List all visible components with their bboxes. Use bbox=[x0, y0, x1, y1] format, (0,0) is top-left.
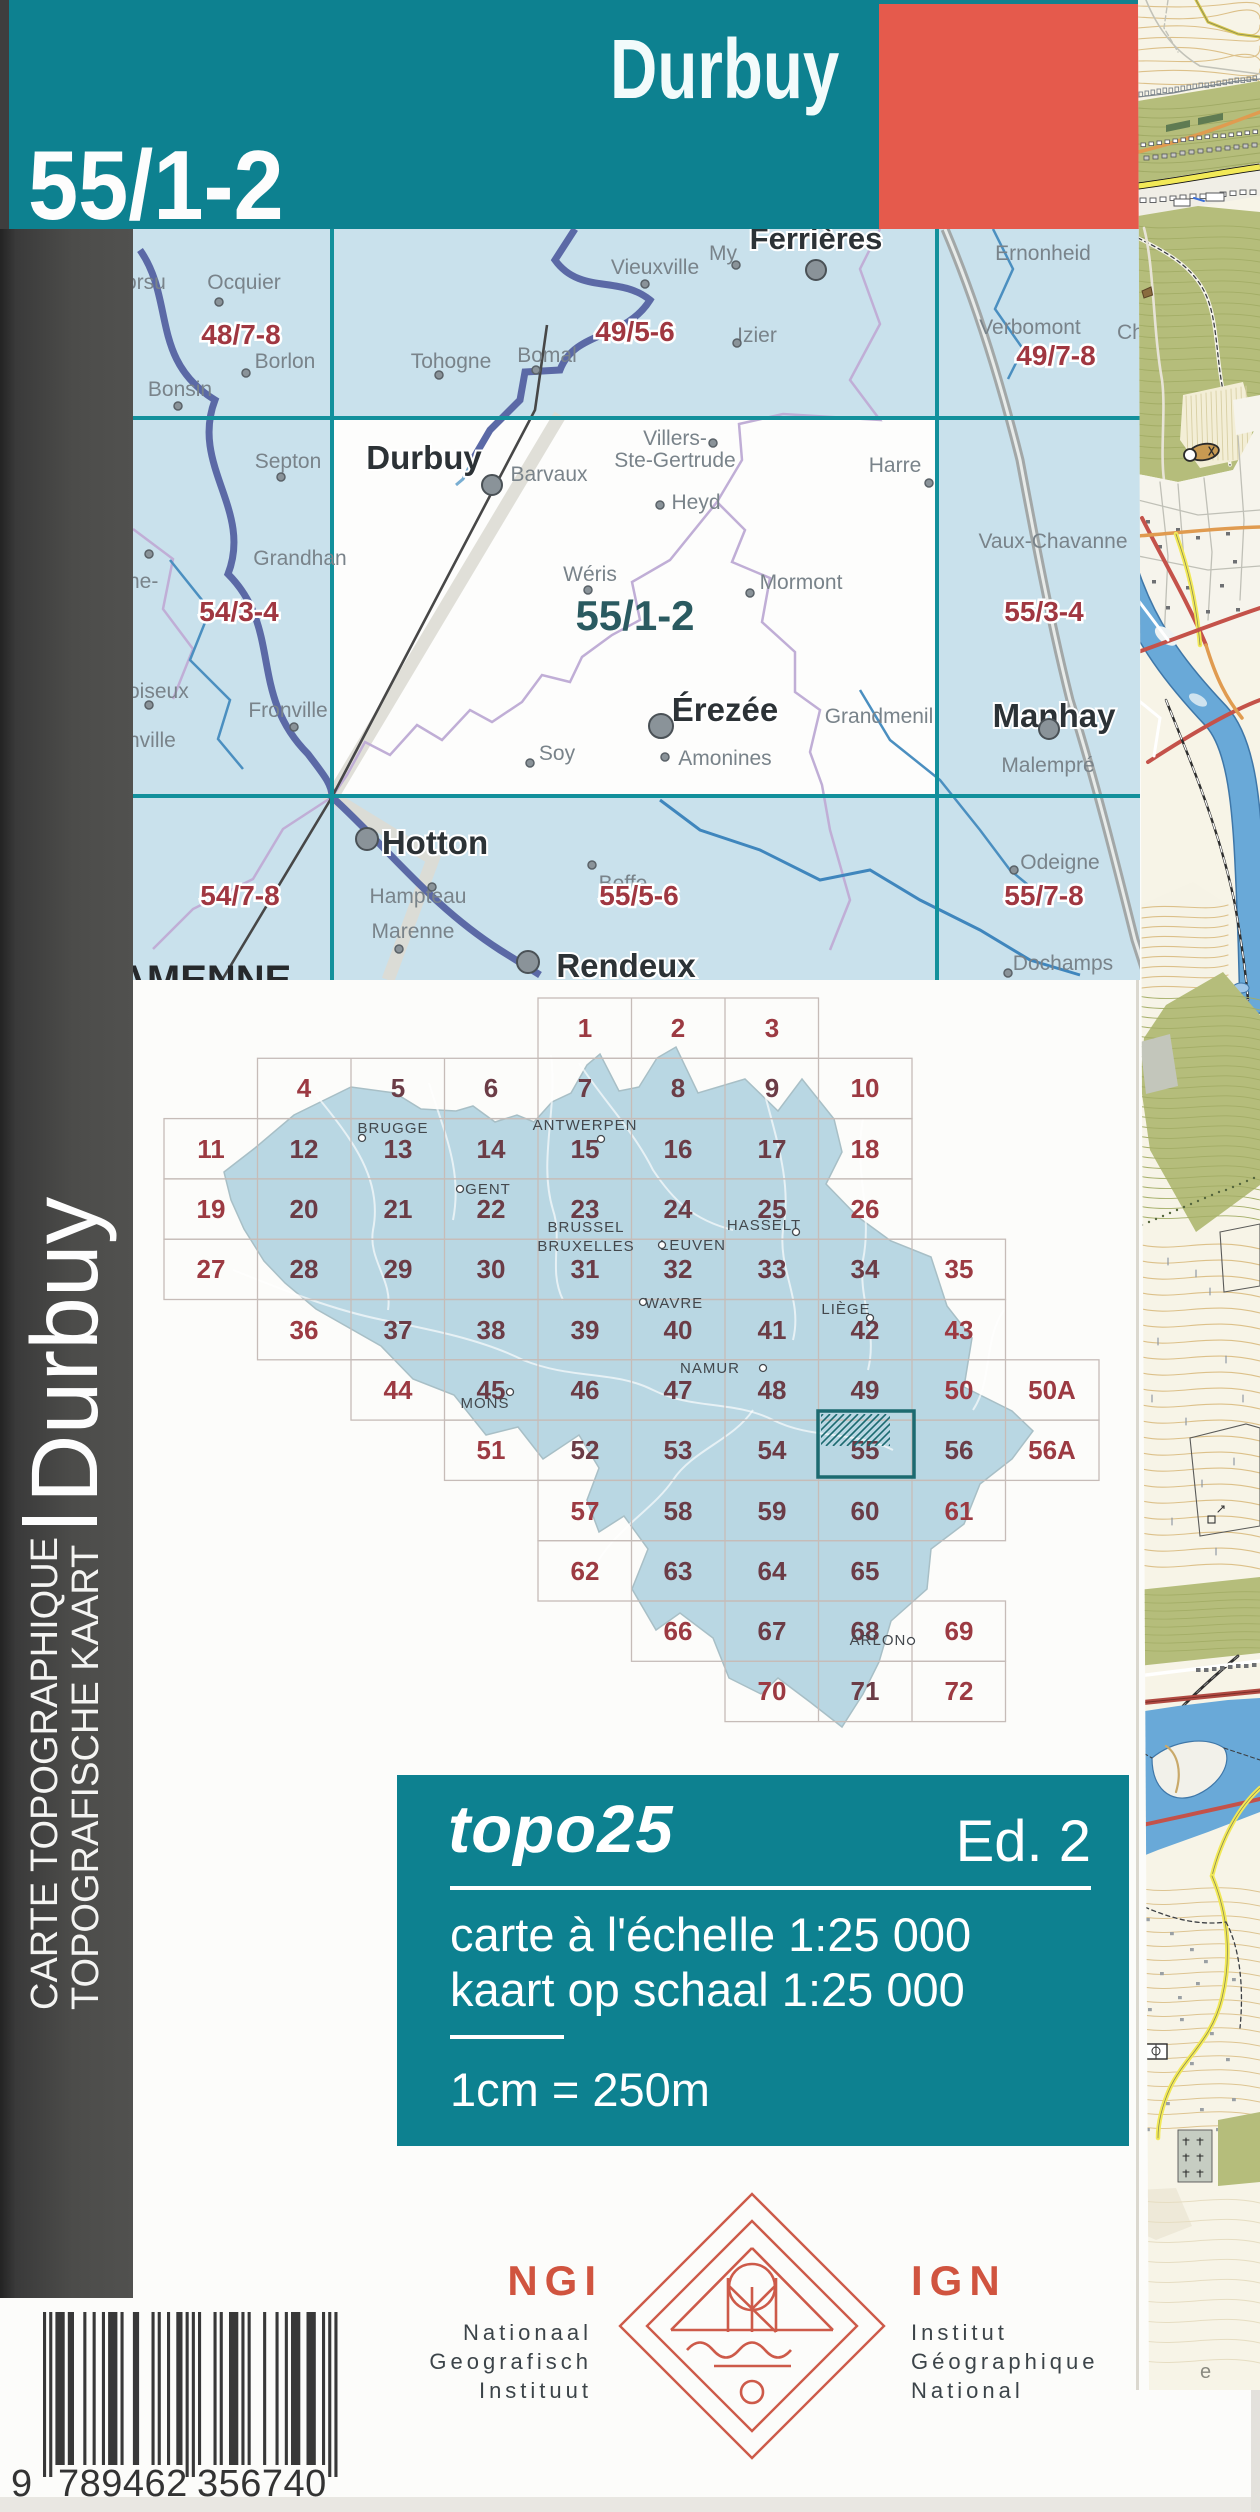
svg-text:29: 29 bbox=[384, 1254, 413, 1284]
svg-text:e: e bbox=[1200, 2361, 1211, 2383]
svg-text:Izier: Izier bbox=[737, 324, 777, 347]
svg-text:17: 17 bbox=[758, 1134, 787, 1164]
svg-text:Grandhan: Grandhan bbox=[253, 547, 346, 570]
svg-text:nville: nville bbox=[133, 729, 176, 752]
svg-text:Ferrières: Ferrières bbox=[750, 229, 883, 256]
svg-text:5: 5 bbox=[391, 1073, 405, 1103]
svg-text:ANTWERPEN: ANTWERPEN bbox=[533, 1117, 638, 1134]
svg-text:56A: 56A bbox=[1028, 1435, 1076, 1465]
svg-text:49/7-8: 49/7-8 bbox=[1016, 340, 1095, 371]
svg-text:Ste-Gertrude: Ste-Gertrude bbox=[614, 449, 735, 472]
svg-text:22: 22 bbox=[477, 1194, 506, 1224]
svg-text:59: 59 bbox=[758, 1496, 787, 1526]
svg-text:Barvaux: Barvaux bbox=[510, 463, 588, 486]
svg-text:39: 39 bbox=[571, 1315, 600, 1345]
svg-text:LEUVEN: LEUVEN bbox=[660, 1237, 726, 1254]
svg-text:9: 9 bbox=[765, 1073, 779, 1103]
svg-text:AMENNE: AMENNE bbox=[133, 958, 291, 980]
svg-text:41: 41 bbox=[758, 1315, 787, 1345]
svg-text:10: 10 bbox=[851, 1073, 880, 1103]
svg-text:Bomal: Bomal bbox=[517, 344, 577, 367]
svg-text:58: 58 bbox=[664, 1496, 693, 1526]
svg-text:Villers-: Villers- bbox=[643, 427, 707, 450]
svg-text:31: 31 bbox=[571, 1254, 600, 1284]
svg-text:BRUXELLES: BRUXELLES bbox=[537, 1238, 634, 1255]
svg-text:70: 70 bbox=[758, 1676, 787, 1706]
svg-text:62: 62 bbox=[571, 1556, 600, 1586]
svg-text:40: 40 bbox=[664, 1315, 693, 1345]
svg-text:Amonines: Amonines bbox=[678, 747, 771, 770]
svg-text:Septon: Septon bbox=[255, 450, 322, 473]
svg-text:Malempré: Malempré bbox=[1001, 754, 1094, 777]
svg-text:16: 16 bbox=[664, 1134, 693, 1164]
svg-text:43: 43 bbox=[945, 1315, 974, 1345]
svg-text:4: 4 bbox=[297, 1073, 312, 1103]
svg-text:48/7-8: 48/7-8 bbox=[201, 319, 280, 350]
svg-text:27: 27 bbox=[197, 1254, 226, 1284]
svg-text:35: 35 bbox=[945, 1254, 974, 1284]
svg-text:orsu: orsu bbox=[133, 271, 166, 294]
svg-text:46: 46 bbox=[571, 1375, 600, 1405]
svg-text:24: 24 bbox=[664, 1194, 693, 1224]
svg-text:55/7-8: 55/7-8 bbox=[1004, 880, 1083, 911]
svg-text:36: 36 bbox=[290, 1315, 319, 1345]
svg-text:26: 26 bbox=[851, 1194, 880, 1224]
svg-text:53: 53 bbox=[664, 1435, 693, 1465]
svg-text:6: 6 bbox=[484, 1073, 498, 1103]
svg-text:Vaux-Chavanne: Vaux-Chavanne bbox=[978, 530, 1127, 553]
svg-text:55/5-6: 55/5-6 bbox=[599, 880, 678, 911]
svg-text:14: 14 bbox=[477, 1134, 506, 1164]
svg-text:Heyd: Heyd bbox=[671, 491, 720, 514]
svg-text:Hampteau: Hampteau bbox=[370, 885, 467, 908]
svg-text:57: 57 bbox=[571, 1496, 600, 1526]
svg-text:54: 54 bbox=[758, 1435, 787, 1465]
svg-text:ARLON: ARLON bbox=[850, 1632, 907, 1649]
svg-text:52: 52 bbox=[571, 1435, 600, 1465]
svg-text:51: 51 bbox=[477, 1435, 506, 1465]
svg-text:48: 48 bbox=[758, 1375, 787, 1405]
svg-text:LIÈGE: LIÈGE bbox=[821, 1301, 870, 1318]
svg-text:BRUSSEL: BRUSSEL bbox=[547, 1219, 624, 1236]
svg-text:20: 20 bbox=[290, 1194, 319, 1224]
svg-text:55/1-2: 55/1-2 bbox=[575, 592, 694, 639]
svg-text:8: 8 bbox=[671, 1073, 685, 1103]
svg-text:GENT: GENT bbox=[465, 1181, 511, 1198]
svg-text:71: 71 bbox=[851, 1676, 880, 1706]
svg-text:33: 33 bbox=[758, 1254, 787, 1284]
svg-text:Ocquier: Ocquier bbox=[207, 271, 281, 294]
svg-text:19: 19 bbox=[197, 1194, 226, 1224]
svg-text:13: 13 bbox=[384, 1134, 413, 1164]
svg-text:ne-: ne- bbox=[133, 570, 158, 593]
svg-text:69: 69 bbox=[945, 1616, 974, 1646]
svg-text:61: 61 bbox=[945, 1496, 974, 1526]
svg-text:47: 47 bbox=[664, 1375, 693, 1405]
svg-text:72: 72 bbox=[945, 1676, 974, 1706]
svg-text:30: 30 bbox=[477, 1254, 506, 1284]
svg-text:WAVRE: WAVRE bbox=[645, 1295, 703, 1312]
svg-text:49: 49 bbox=[851, 1375, 880, 1405]
svg-text:65: 65 bbox=[851, 1556, 880, 1586]
svg-text:2: 2 bbox=[671, 1013, 685, 1043]
svg-text:21: 21 bbox=[384, 1194, 413, 1224]
svg-text:1: 1 bbox=[578, 1013, 592, 1043]
svg-text:32: 32 bbox=[664, 1254, 693, 1284]
svg-text:49/5-6: 49/5-6 bbox=[595, 316, 674, 347]
svg-text:Soy: Soy bbox=[539, 742, 576, 765]
svg-text:oiseux: oiseux bbox=[133, 680, 189, 703]
svg-text:Érezée: Érezée bbox=[672, 691, 778, 728]
svg-text:Fronville: Fronville bbox=[248, 699, 327, 722]
svg-text:HASSELT: HASSELT bbox=[727, 1217, 801, 1234]
svg-text:Marenne: Marenne bbox=[372, 920, 455, 943]
svg-text:67: 67 bbox=[758, 1616, 787, 1646]
svg-text:Borlon: Borlon bbox=[255, 350, 316, 373]
svg-text:Ch: Ch bbox=[1117, 321, 1140, 344]
svg-text:12: 12 bbox=[290, 1134, 319, 1164]
svg-text:54/3-4: 54/3-4 bbox=[199, 596, 279, 627]
svg-text:44: 44 bbox=[384, 1375, 413, 1405]
svg-text:50A: 50A bbox=[1028, 1375, 1076, 1405]
svg-text:Mormont: Mormont bbox=[760, 571, 843, 594]
svg-text:37: 37 bbox=[384, 1315, 413, 1345]
svg-text:7: 7 bbox=[578, 1073, 592, 1103]
svg-text:NAMUR: NAMUR bbox=[680, 1360, 740, 1377]
svg-text:11: 11 bbox=[197, 1134, 225, 1164]
svg-text:Tohogne: Tohogne bbox=[411, 350, 492, 373]
svg-text:38: 38 bbox=[477, 1315, 506, 1345]
svg-text:42: 42 bbox=[851, 1315, 880, 1345]
svg-text:66: 66 bbox=[664, 1616, 693, 1646]
svg-text:28: 28 bbox=[290, 1254, 319, 1284]
svg-text:Bonsin: Bonsin bbox=[148, 378, 212, 401]
svg-text:Dochamps: Dochamps bbox=[1013, 952, 1113, 975]
svg-text:50: 50 bbox=[945, 1375, 974, 1405]
svg-text:3: 3 bbox=[765, 1013, 779, 1043]
svg-text:56: 56 bbox=[945, 1435, 974, 1465]
svg-text:55/3-4: 55/3-4 bbox=[1004, 596, 1084, 627]
svg-text:Grandmenil: Grandmenil bbox=[825, 705, 934, 728]
svg-text:64: 64 bbox=[758, 1556, 787, 1586]
svg-text:Ernonheid: Ernonheid bbox=[995, 242, 1091, 265]
svg-text:60: 60 bbox=[851, 1496, 880, 1526]
svg-text:34: 34 bbox=[851, 1254, 880, 1284]
svg-text:Wéris: Wéris bbox=[563, 563, 617, 586]
svg-text:18: 18 bbox=[851, 1134, 880, 1164]
svg-text:Odeigne: Odeigne bbox=[1020, 851, 1099, 874]
svg-text:63: 63 bbox=[664, 1556, 693, 1586]
svg-text:Rendeux: Rendeux bbox=[556, 947, 696, 980]
svg-text:Durbuy: Durbuy bbox=[366, 439, 482, 476]
svg-text:BRUGGE: BRUGGE bbox=[357, 1120, 428, 1137]
svg-text:Vieuxville: Vieuxville bbox=[611, 256, 699, 279]
svg-text:54/7-8: 54/7-8 bbox=[200, 880, 279, 911]
svg-text:15: 15 bbox=[571, 1134, 600, 1164]
svg-text:Hotton: Hotton bbox=[382, 824, 488, 861]
svg-text:Verbomont: Verbomont bbox=[979, 316, 1081, 339]
svg-text:MONS: MONS bbox=[461, 1395, 510, 1412]
svg-text:Harre: Harre bbox=[869, 454, 922, 477]
